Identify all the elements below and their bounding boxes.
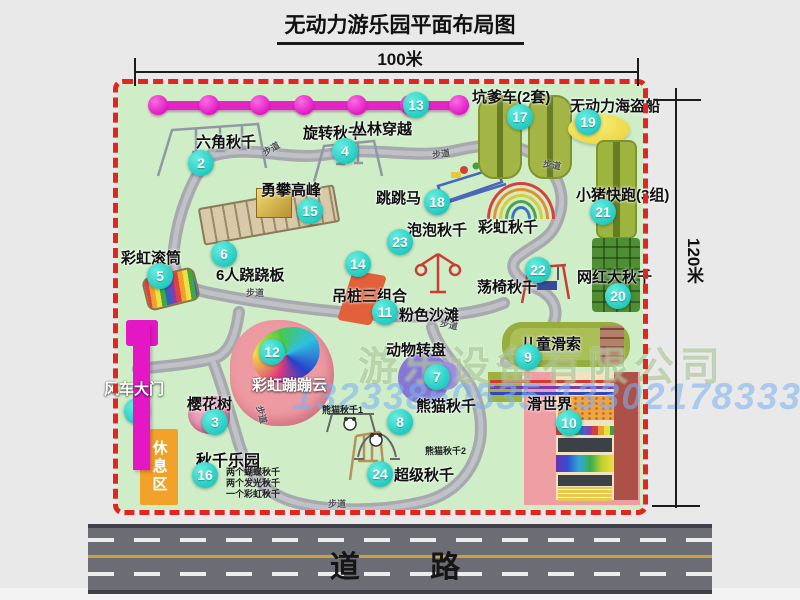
label-hanging-pile: 吊桩三组合 (332, 285, 407, 306)
label-pit-cart: 坑爹车(2套) (472, 86, 550, 107)
road-label: 道 路 (88, 542, 712, 586)
jungle-crossing-node (449, 95, 469, 115)
label-swing-park-note-1: 两个蝴蝶秋千 (226, 467, 280, 478)
dimension-height-tick-top (655, 99, 701, 101)
marker-11: 11 (372, 299, 398, 325)
marker-2: 2 (188, 150, 214, 176)
road: 道 路 (88, 524, 712, 594)
jungle-crossing-node (294, 95, 314, 115)
slide-world-gradient-slide (556, 455, 614, 472)
label-panda-swing-2: 熊猫秋千2 (425, 444, 466, 457)
label-swing-park-note-2: 两个发光秋千 (226, 478, 280, 489)
jungle-crossing-node (250, 95, 270, 115)
label-rainbow-cloud: 彩虹蹦蹦云 (252, 374, 327, 395)
label-windmill-gate: 风车大门 (104, 378, 164, 399)
marker-19: 19 (575, 109, 601, 135)
page-title: 无动力游乐园平面布局图 (0, 9, 800, 45)
marker-15: 15 (297, 198, 323, 224)
marker-21: 21 (590, 199, 616, 225)
label-hex-swing: 六角秋千 (196, 131, 256, 152)
label-bubble-swing: 泡泡秋千 (407, 219, 467, 240)
marker-7: 7 (424, 364, 450, 390)
marker-16: 16 (192, 462, 218, 488)
dimension-width-label: 100米 (358, 45, 442, 70)
marker-23: 23 (387, 229, 413, 255)
dimension-width-tick-right (637, 58, 639, 86)
dimension-width-line (135, 71, 639, 73)
slide-world-dark-band-2 (558, 475, 612, 486)
rainbow-swing-icon (487, 182, 549, 218)
label-animal-turntable: 动物转盘 (386, 339, 446, 360)
marker-5: 5 (147, 263, 173, 289)
jungle-crossing-node (347, 95, 367, 115)
label-swing-park-note-3: 一个彩虹秋千 (226, 489, 280, 500)
marker-6: 6 (211, 241, 237, 267)
marker-24: 24 (367, 461, 393, 487)
dimension-width-tick-left (134, 58, 136, 86)
label-panda-swing-1: 熊猫秋千1 (322, 403, 363, 416)
marker-4: 4 (332, 138, 358, 164)
dimension-height-line (675, 88, 677, 508)
slide-world-wave-slide (558, 487, 612, 501)
label-jumping-horse: 跳跳马 (376, 187, 421, 208)
slide-world-dark-band-1 (558, 438, 612, 452)
label-panda-swing: 熊猫秋千 (416, 395, 476, 416)
label-pink-beach: 粉色沙滩 (399, 304, 459, 325)
dimension-height-tick-bottom (652, 505, 700, 507)
screenshot-root: { "title": "无动力游乐园平面布局图", "dims": { "top… (0, 0, 800, 600)
marker-18: 18 (424, 189, 450, 215)
label-piggy-run: 小猪快跑(3组) (576, 184, 669, 205)
marker-3: 3 (202, 409, 228, 435)
jungle-crossing-node (148, 95, 168, 115)
panda-swing-2-icon (354, 433, 400, 459)
bubble-swing-icon (416, 254, 460, 292)
park-map: 休息区 游乐设备有限公司 13233860535 13302178333 步道 … (118, 84, 643, 510)
marker-9: 9 (515, 344, 541, 370)
jungle-crossing-node (199, 95, 219, 115)
label-super-swing: 超级秋千 (394, 464, 454, 485)
label-seesaw: 6人跷跷板 (216, 264, 284, 285)
trail-label: 步道 (246, 286, 264, 299)
marker-10: 10 (556, 410, 582, 436)
marker-13: 13 (403, 92, 429, 118)
label-rainbow-swing: 彩虹秋千 (478, 216, 538, 237)
marker-20: 20 (605, 283, 631, 309)
dimension-height-label: 120米 (681, 238, 706, 283)
label-jungle-crossing: 丛林穿越 (352, 118, 412, 139)
trail-label: 步道 (431, 146, 451, 161)
marker-17: 17 (507, 104, 533, 130)
marker-14: 14 (345, 251, 371, 277)
label-climbing-peak: 勇攀高峰 (261, 179, 321, 200)
trail-label: 步道 (328, 497, 346, 510)
marker-12: 12 (259, 339, 285, 365)
marker-8: 8 (387, 409, 413, 435)
marker-22: 22 (525, 257, 551, 283)
